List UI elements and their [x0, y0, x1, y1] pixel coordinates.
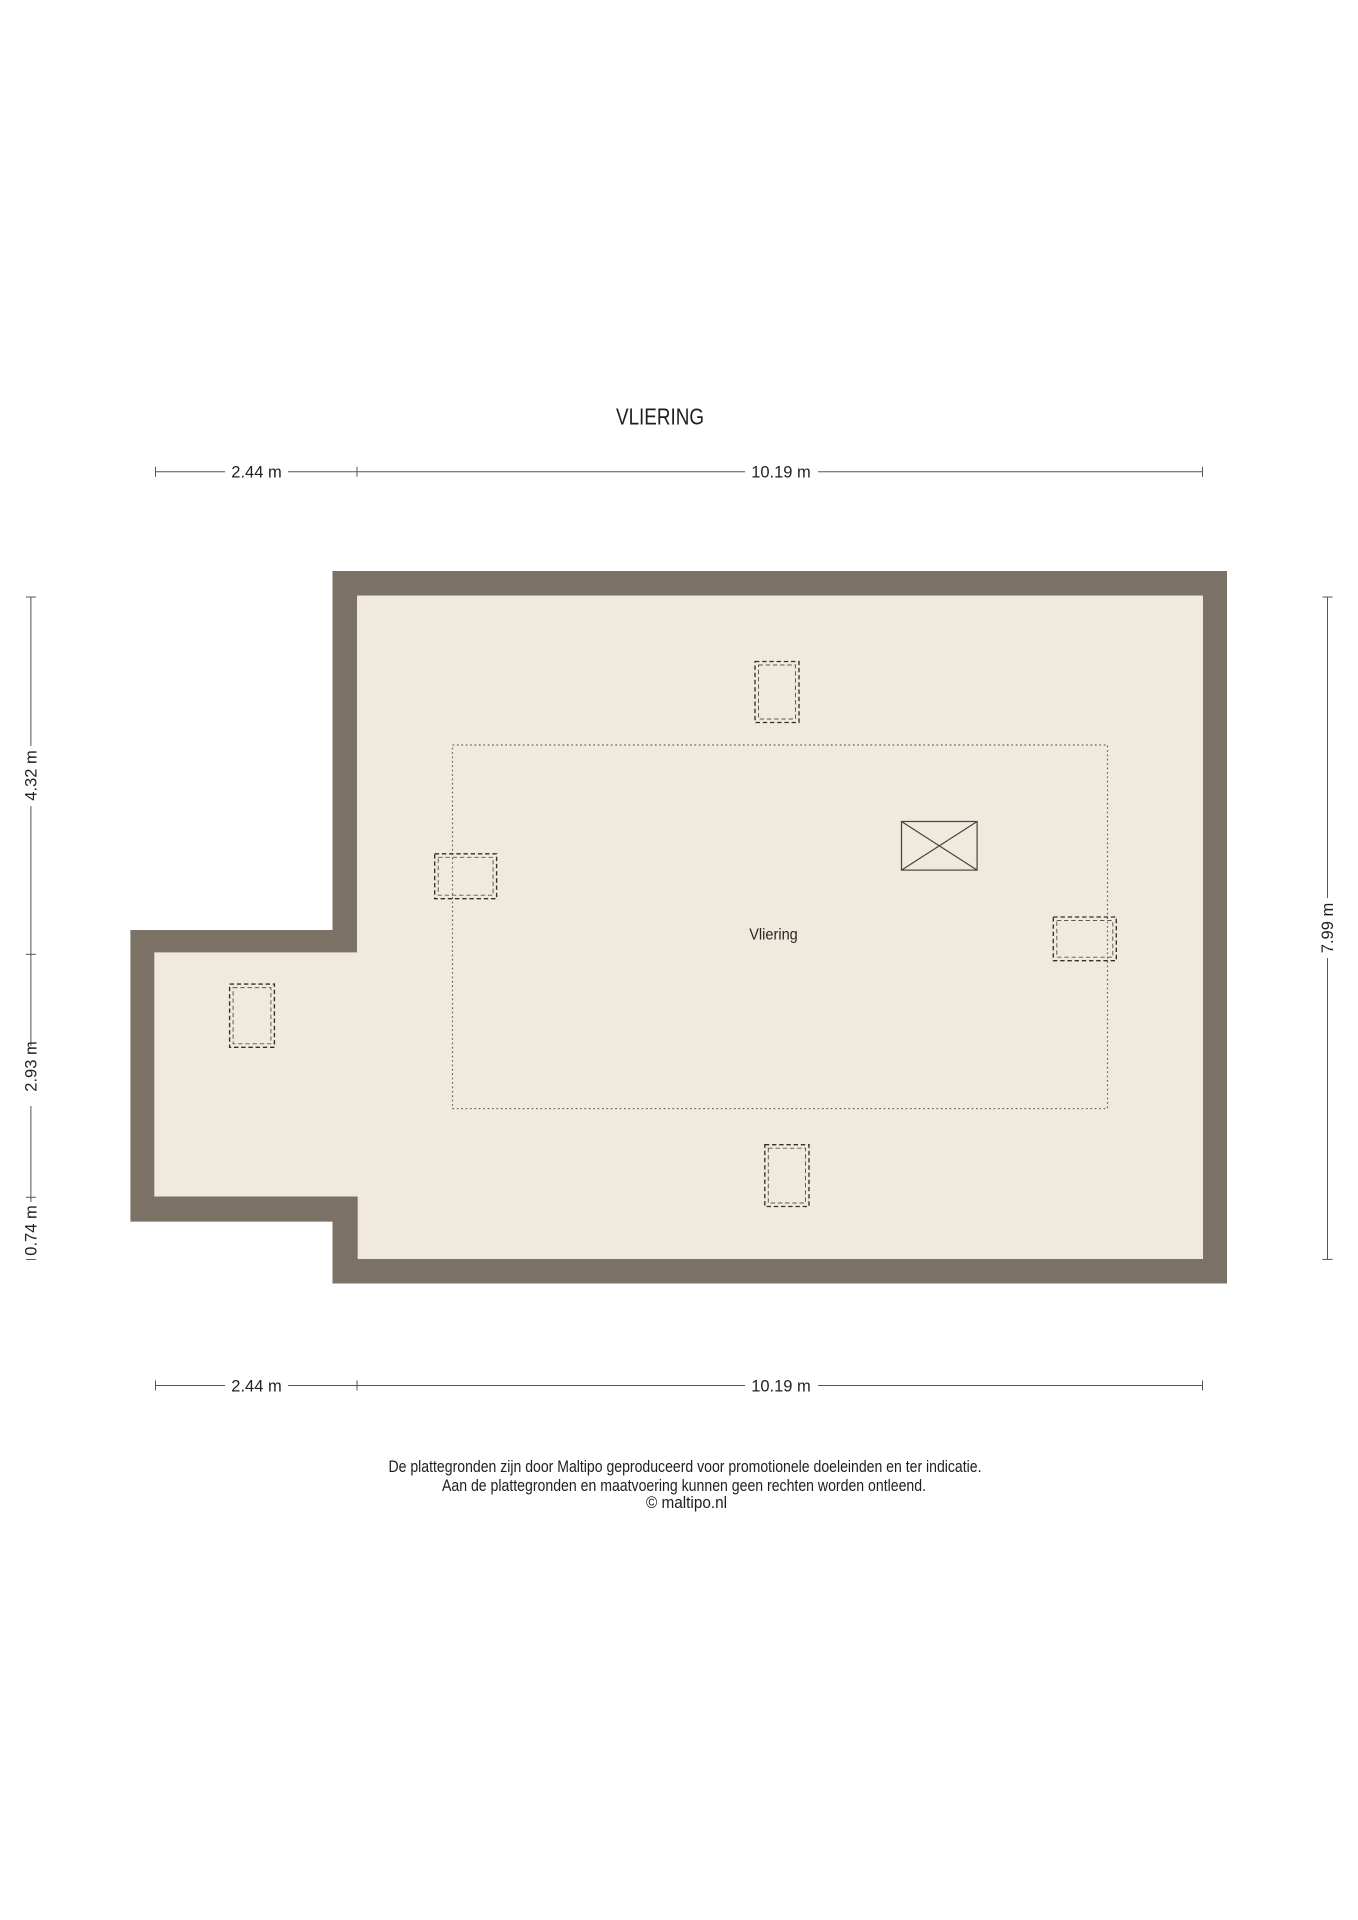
svg-text:7.99 m: 7.99 m: [1319, 903, 1337, 953]
svg-text:Aan de plattegronden en maatvo: Aan de plattegronden en maatvoering kunn…: [442, 1477, 926, 1495]
svg-text:2.44 m: 2.44 m: [231, 464, 281, 482]
svg-text:2.93 m: 2.93 m: [23, 1041, 41, 1091]
svg-text:© maltipo.nl: © maltipo.nl: [646, 1494, 727, 1512]
svg-text:10.19 m: 10.19 m: [751, 1377, 811, 1395]
svg-text:VLIERING: VLIERING: [616, 404, 704, 430]
svg-text:Vliering: Vliering: [749, 927, 798, 944]
svg-text:0.74 m: 0.74 m: [23, 1205, 41, 1255]
svg-text:2.44 m: 2.44 m: [231, 1377, 281, 1395]
svg-text:De plattegronden zijn door Mal: De plattegronden zijn door Maltipo gepro…: [389, 1458, 982, 1476]
svg-text:10.19 m: 10.19 m: [751, 464, 811, 482]
svg-text:4.32 m: 4.32 m: [23, 750, 41, 800]
